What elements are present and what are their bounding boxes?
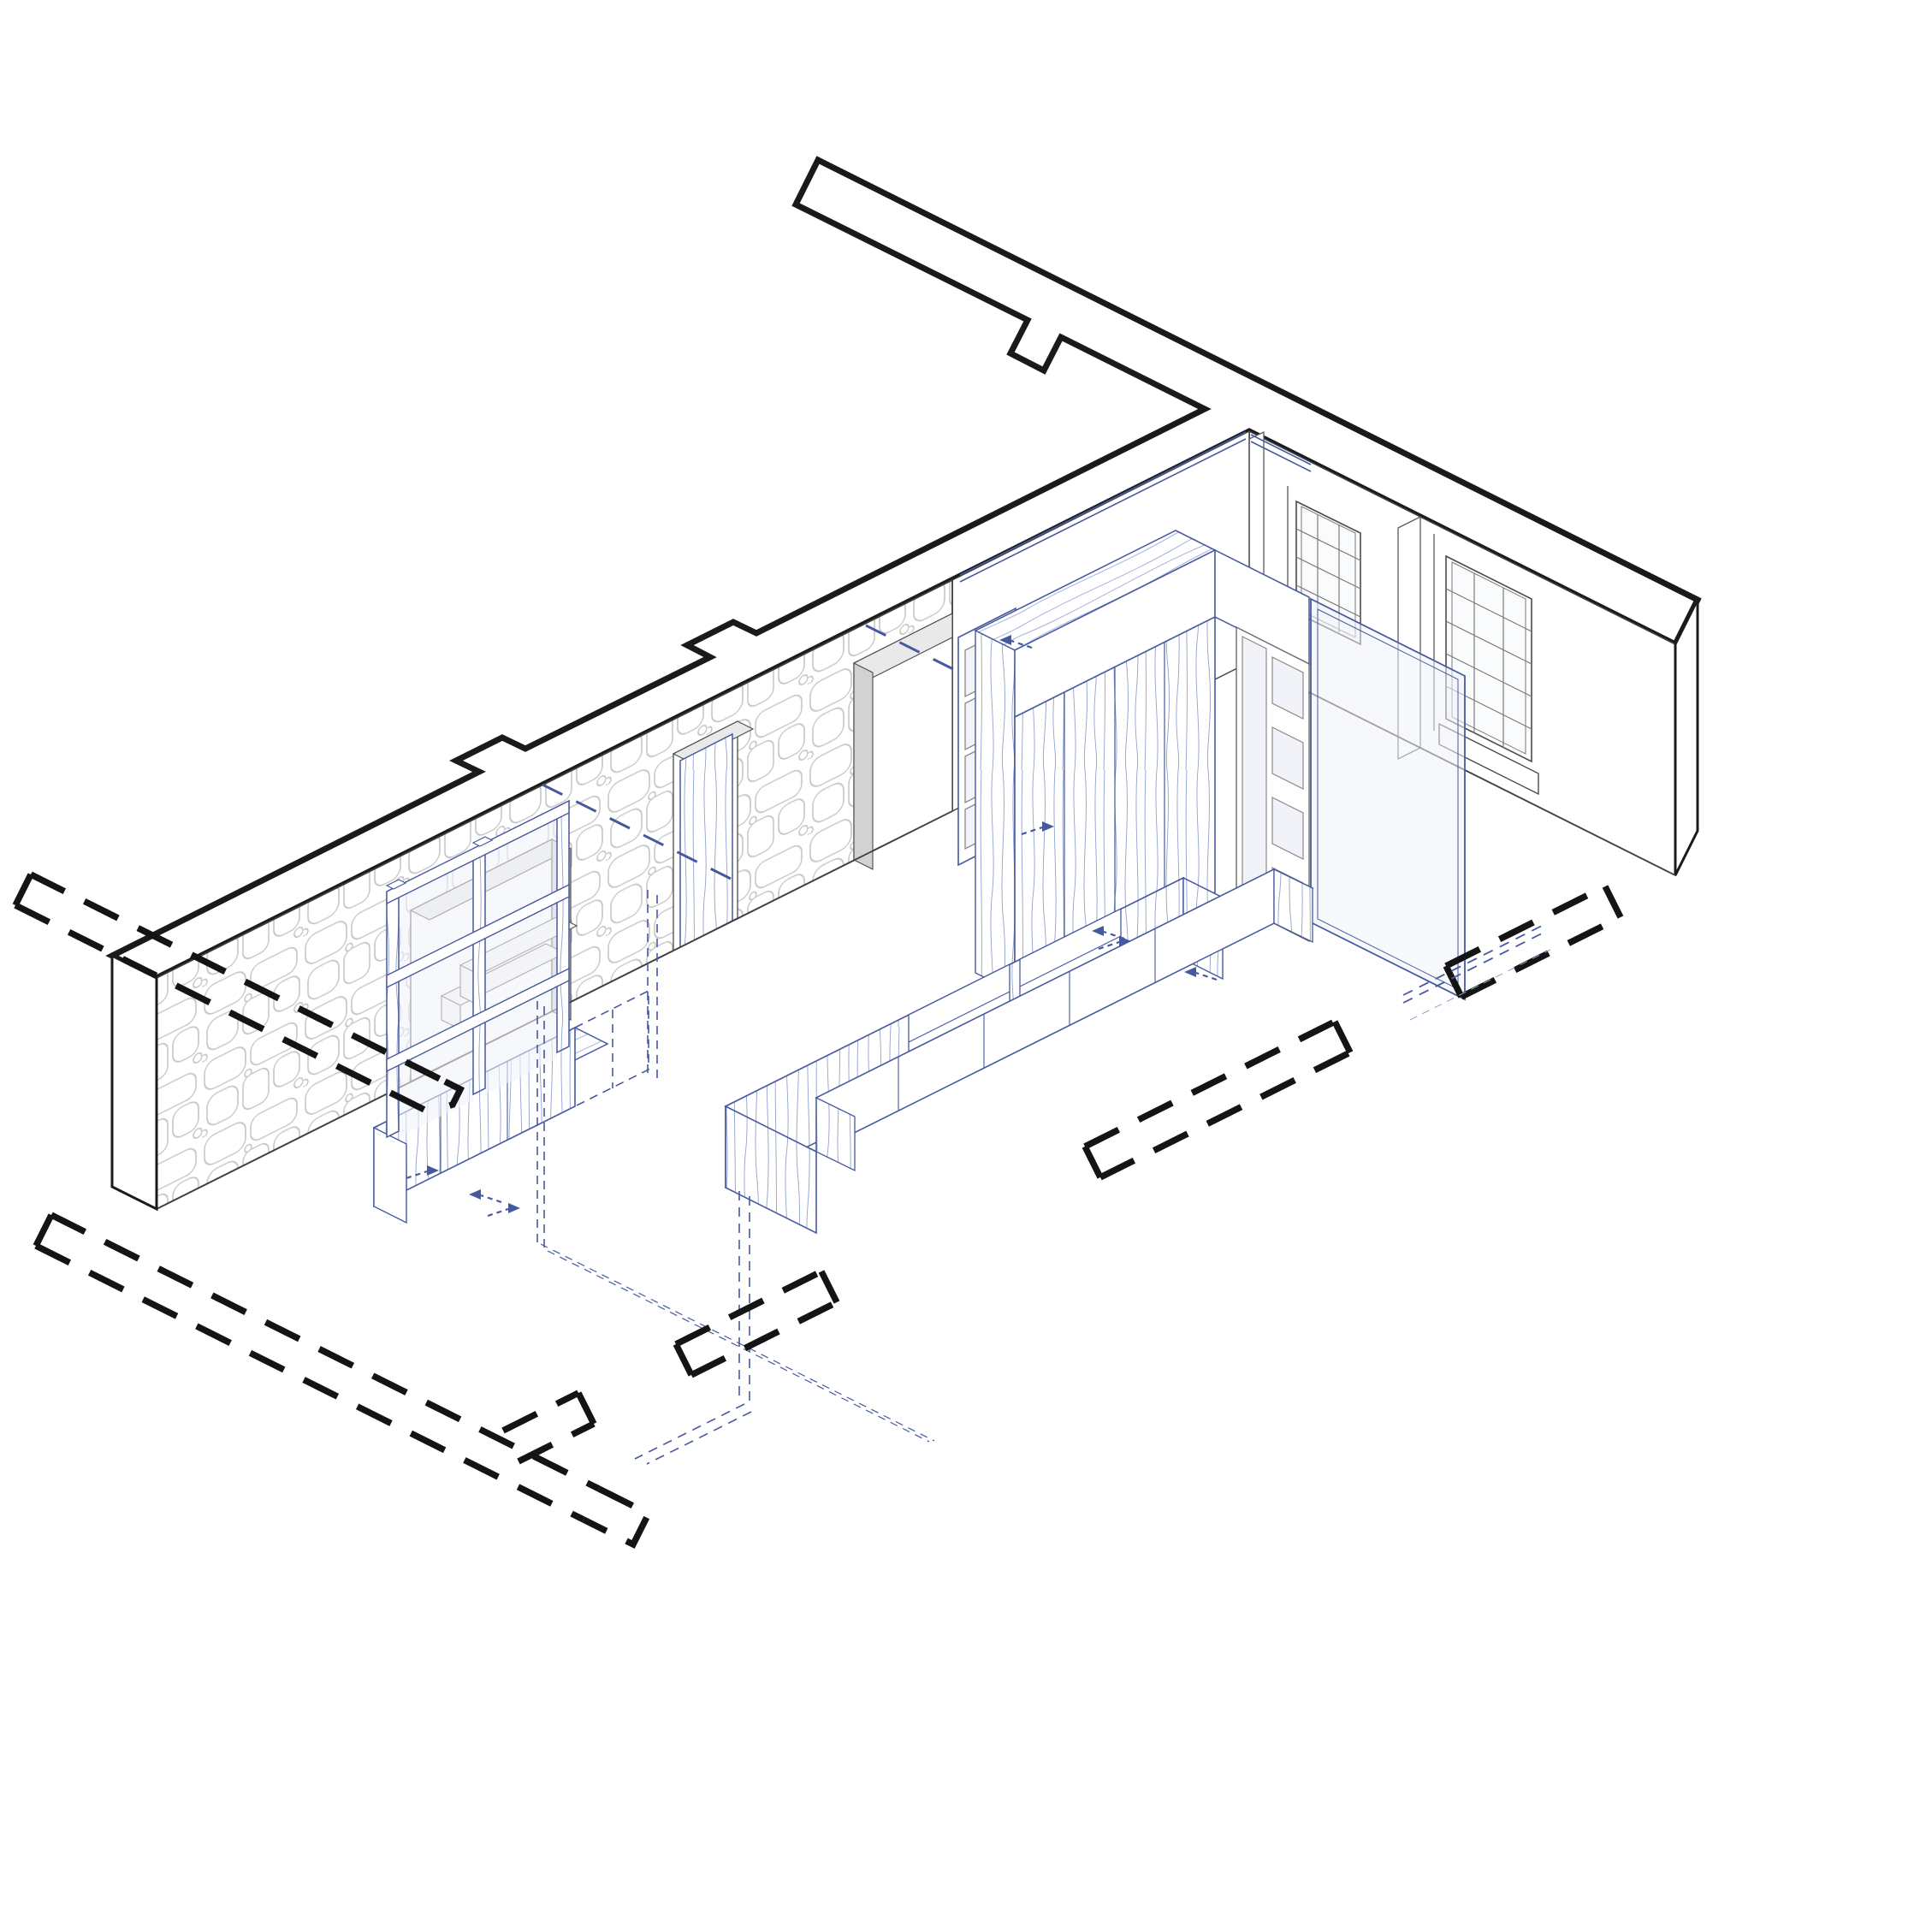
sliding-arrow (488, 1203, 520, 1216)
rear-doorway-jamb (854, 663, 873, 869)
demolished-band-L2 (36, 1215, 649, 1544)
right-wall-end-face (1675, 600, 1698, 875)
demolished-band-C (503, 1271, 837, 1461)
bay-floor-projection (541, 1244, 934, 1442)
kitchen-island (635, 869, 1313, 1464)
timber-door-leaf (680, 734, 732, 947)
sliding-arrow (469, 1189, 501, 1202)
partition-pane-left (399, 861, 473, 1137)
wardrobe-side-return (975, 631, 1015, 993)
bench-left-end (374, 1128, 406, 1223)
left-wall-end-face (112, 956, 157, 1209)
axonometric-drawing: Interior renovation axonometric (0, 0, 1932, 1932)
partition-pane-right (485, 819, 557, 1094)
island-projection-lines (635, 1191, 751, 1464)
glazed-door-pane (1242, 637, 1266, 916)
drawing-stage: Interior renovation axonometric (0, 0, 1932, 1932)
